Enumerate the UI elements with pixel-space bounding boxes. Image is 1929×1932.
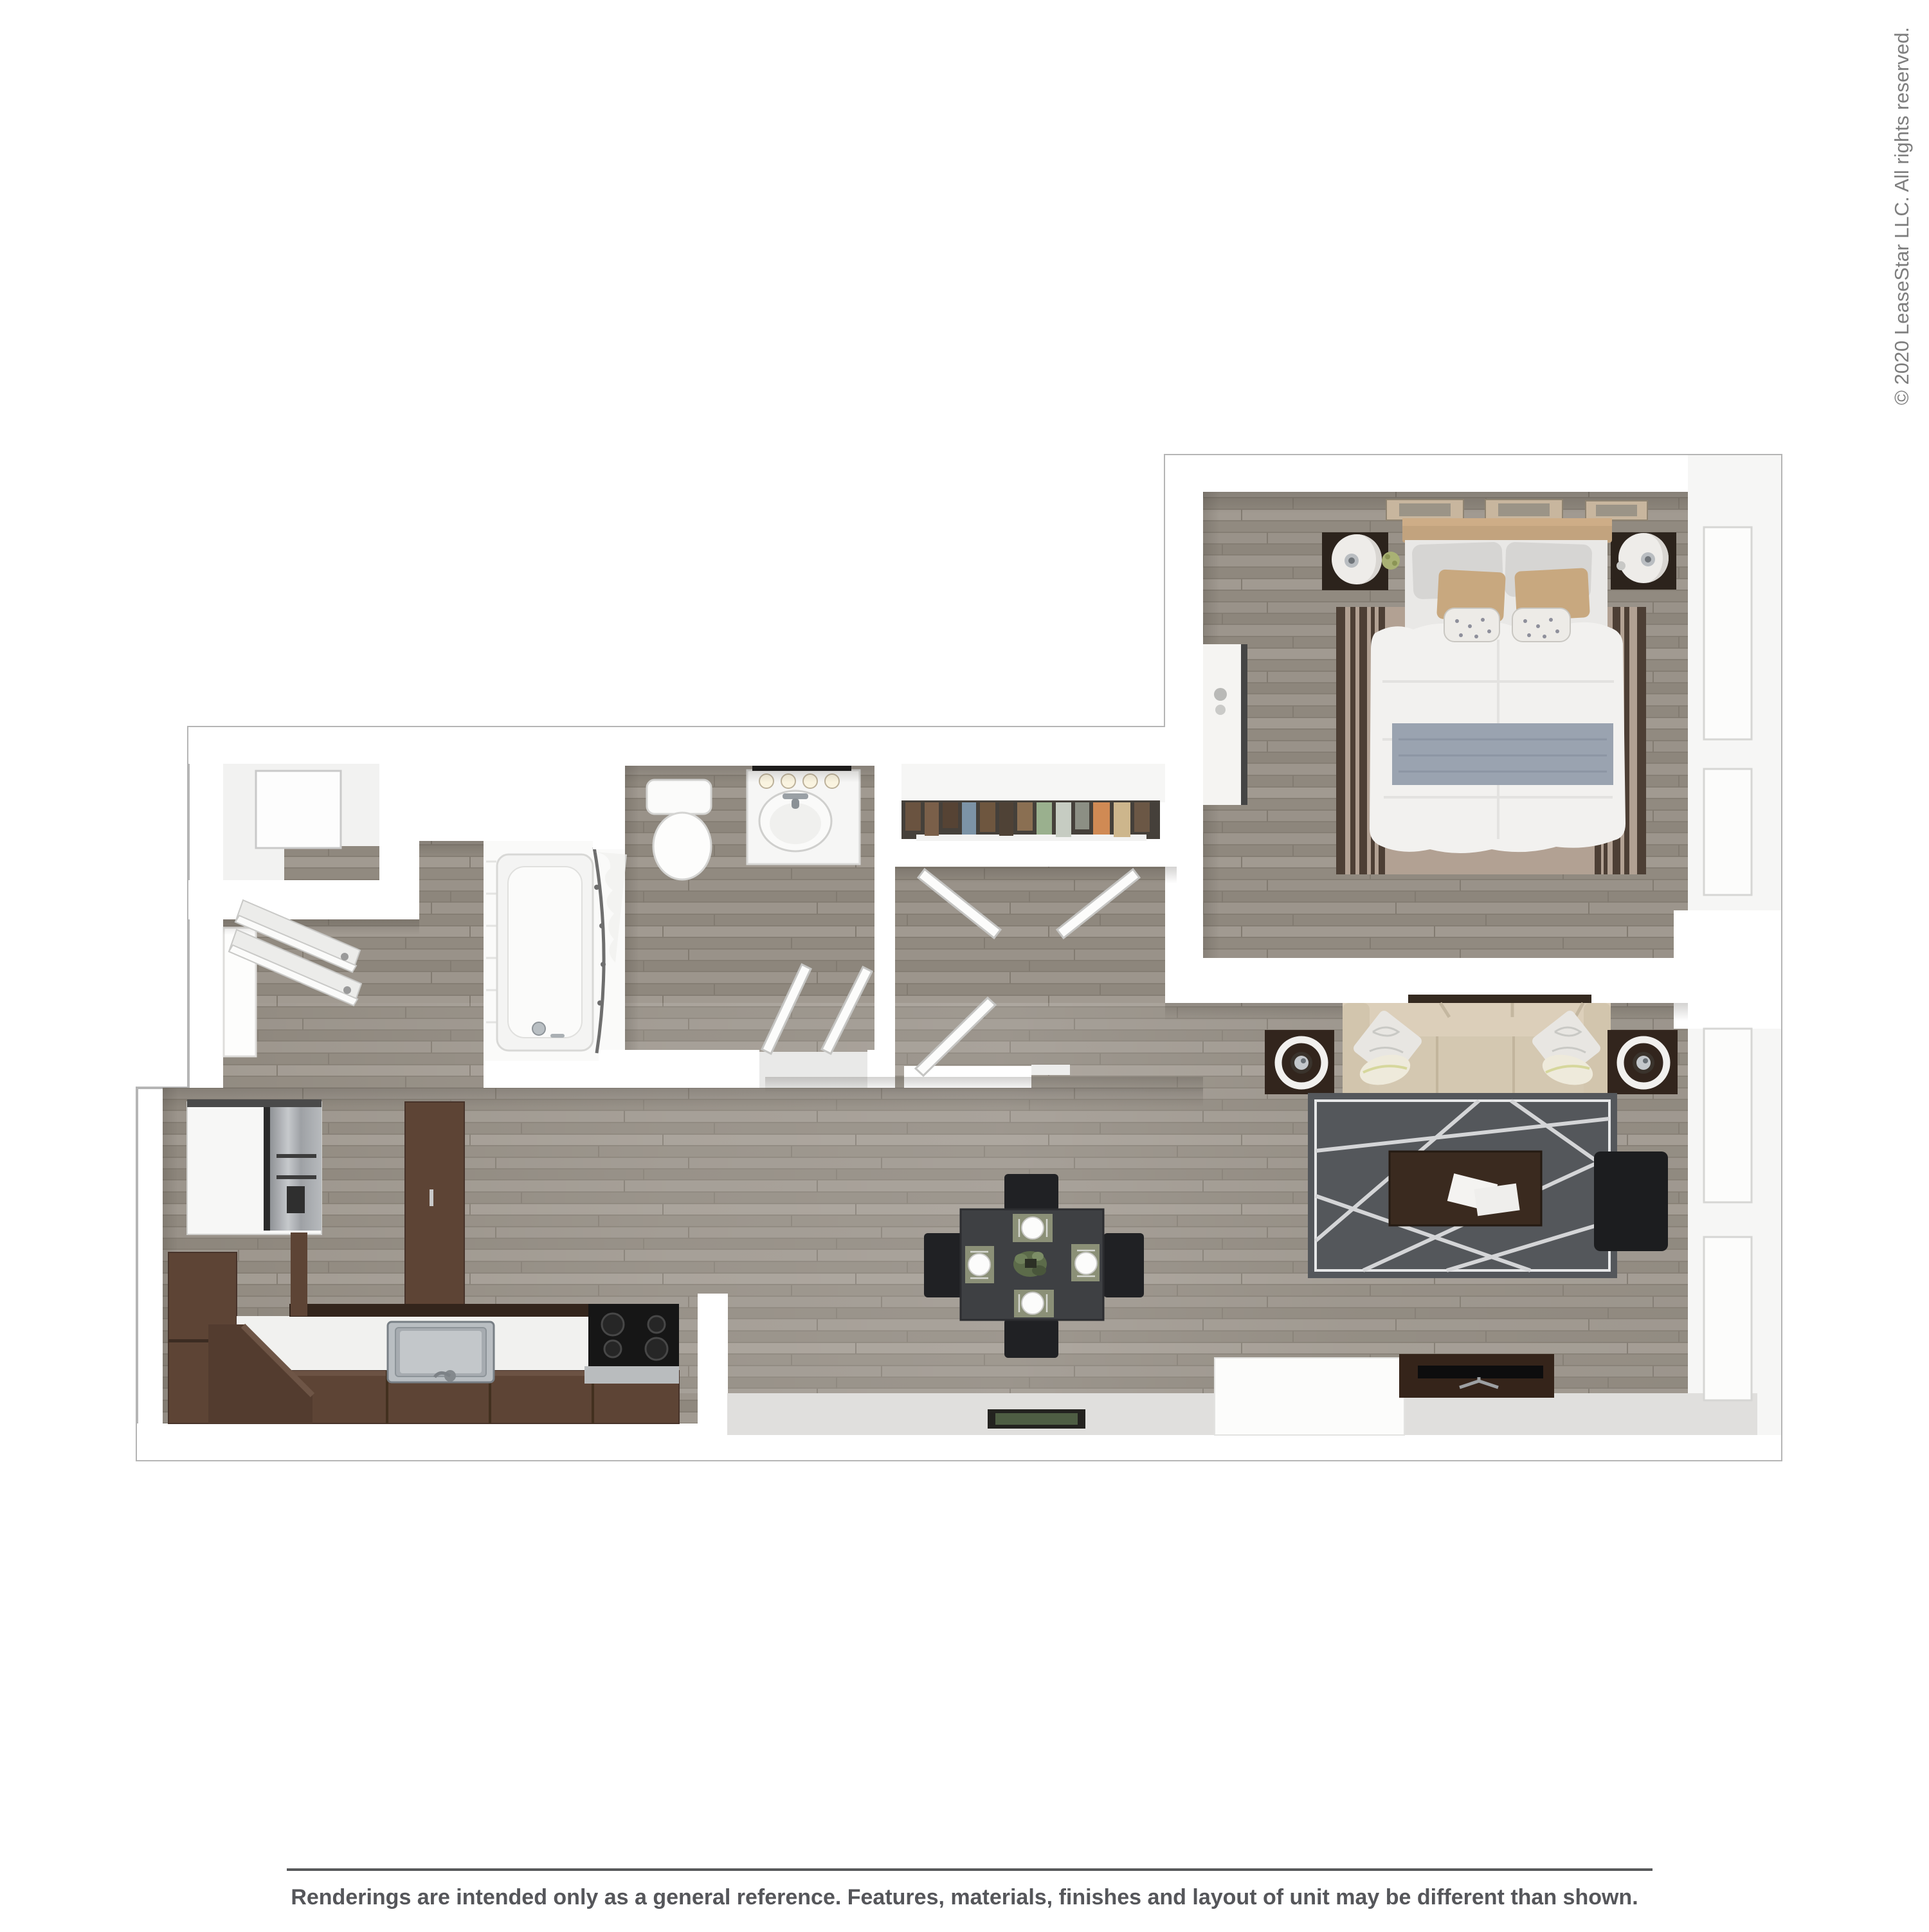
svg-text:Renderings are intended only a: Renderings are intended only as a genera… <box>291 1885 1638 1909</box>
svg-text:© 2020 LeaseStar LLC. All righ: © 2020 LeaseStar LLC. All rights reserve… <box>1890 27 1913 405</box>
